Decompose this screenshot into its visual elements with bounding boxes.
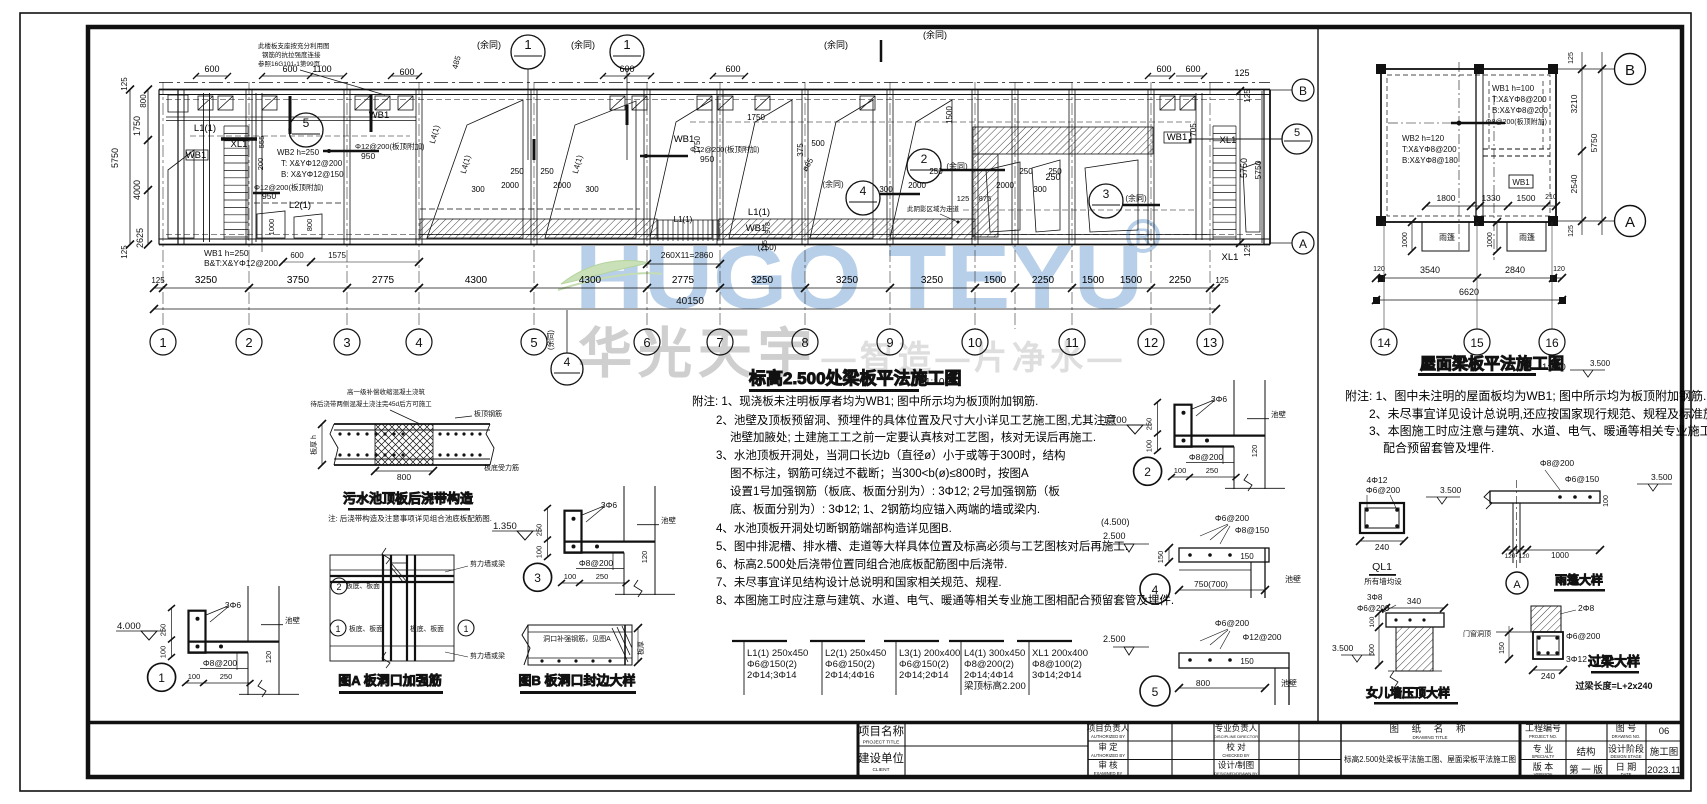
svg-text:3250: 3250 <box>921 275 944 286</box>
svg-text:3250: 3250 <box>195 275 218 286</box>
svg-text:3、水池顶板开洞处，当洞口长边b（直径ø）小于或等于300时: 3、水池顶板开洞处，当洞口长边b（直径ø）小于或等于300时，结构 <box>716 448 1066 462</box>
svg-text:1: 1 <box>623 37 630 52</box>
svg-text:池壁: 池壁 <box>1271 409 1287 419</box>
svg-text:2000: 2000 <box>908 181 926 190</box>
svg-text:125: 125 <box>957 194 970 203</box>
svg-text:4: 4 <box>415 335 422 350</box>
svg-text:14: 14 <box>1377 336 1391 350</box>
svg-text:500: 500 <box>811 139 825 148</box>
svg-text:3250: 3250 <box>836 275 859 286</box>
svg-text:图 纸 名 称: 图 纸 名 称 <box>1390 723 1471 735</box>
svg-text:WB1: WB1 <box>1167 132 1188 143</box>
svg-text:T: X&YΦ12@200: T: X&YΦ12@200 <box>281 159 343 168</box>
svg-text:3Φ8: 3Φ8 <box>1367 593 1383 602</box>
svg-text:600: 600 <box>204 64 219 74</box>
svg-text:配合预留套管及埋件.: 配合预留套管及埋件. <box>1383 440 1494 455</box>
svg-text:150: 150 <box>1240 657 1254 666</box>
svg-text:DESIGNED/DRAWN BY: DESIGNED/DRAWN BY <box>1214 771 1258 776</box>
svg-text:1.350: 1.350 <box>493 521 517 532</box>
svg-text:女儿墙压顶大样: 女儿墙压顶大样 <box>1366 685 1450 700</box>
svg-text:参照16G101-1第99页.: 参照16G101-1第99页. <box>258 59 322 68</box>
svg-text:250: 250 <box>159 624 168 637</box>
svg-text:5: 5 <box>303 116 310 130</box>
svg-text:800: 800 <box>305 219 314 232</box>
svg-text:5: 5 <box>1152 685 1159 699</box>
svg-text:1500: 1500 <box>984 275 1007 286</box>
svg-text:审 核: 审 核 <box>1098 760 1118 770</box>
svg-text:2: 2 <box>1144 465 1151 479</box>
svg-text:300: 300 <box>585 185 599 194</box>
svg-text:1: 1 <box>159 335 166 350</box>
svg-text:专 业: 专 业 <box>1533 743 1554 754</box>
svg-text:板底、板面: 板底、板面 <box>346 581 380 590</box>
svg-text:1330: 1330 <box>1482 193 1501 203</box>
svg-text:板厚: 板厚 <box>636 641 645 655</box>
svg-text:2Φ14;2Φ14: 2Φ14;2Φ14 <box>899 670 949 681</box>
svg-text:Φ8@100(2): Φ8@100(2) <box>1032 659 1082 670</box>
svg-text:375: 375 <box>796 143 805 157</box>
svg-text:125: 125 <box>1215 276 1229 285</box>
svg-text:A: A <box>1625 214 1635 231</box>
svg-text:3: 3 <box>1103 187 1110 201</box>
svg-text:7、未尽事宜详见结构设计总说明和国家相关规范、规程.: 7、未尽事宜详见结构设计总说明和国家相关规范、规程. <box>716 575 1002 589</box>
svg-text:梁顶标高2.200: 梁顶标高2.200 <box>964 680 1026 692</box>
svg-text:5750: 5750 <box>110 148 120 168</box>
svg-text:40150: 40150 <box>676 296 704 307</box>
svg-text:日 期: 日 期 <box>1616 762 1637 772</box>
svg-text:Φ6@200: Φ6@200 <box>1215 513 1250 523</box>
svg-text:5: 5 <box>530 335 537 350</box>
svg-text:Φ8@200(板顶附加): Φ8@200(板顶附加) <box>1486 117 1547 126</box>
svg-text:250: 250 <box>220 672 233 681</box>
svg-text:1:100: 1:100 <box>1542 362 1566 373</box>
svg-text:150: 150 <box>1240 552 1254 561</box>
svg-text:4.000: 4.000 <box>117 621 141 632</box>
svg-text:图B 板洞口封边大样: 图B 板洞口封边大样 <box>518 673 635 688</box>
svg-text:1750: 1750 <box>747 113 765 122</box>
svg-text:120: 120 <box>640 551 649 564</box>
svg-text:XL1: XL1 <box>1222 252 1239 263</box>
svg-text:Φ6@150(2): Φ6@150(2) <box>747 659 797 670</box>
svg-text:2、未尽事宜详见设计总说明,还应按国家现行规范、规程及标准施: 2、未尽事宜详见设计总说明,还应按国家现行规范、规程及标准施工. <box>1369 406 1707 421</box>
svg-text:1000: 1000 <box>1487 232 1494 248</box>
svg-text:B:X&YΦ8@200: B:X&YΦ8@200 <box>1492 106 1548 115</box>
svg-text:3210: 3210 <box>1569 94 1579 113</box>
svg-text:Φ8@200: Φ8@200 <box>203 658 238 668</box>
svg-text:3.500: 3.500 <box>1590 359 1611 368</box>
svg-text:1750: 1750 <box>132 116 142 136</box>
svg-text:750(700): 750(700) <box>1194 579 1228 589</box>
svg-text:L1(1): L1(1) <box>674 215 693 224</box>
svg-text:1500: 1500 <box>945 106 954 124</box>
svg-text:Φ6@150: Φ6@150 <box>1565 474 1600 484</box>
svg-text:11: 11 <box>1065 335 1079 350</box>
svg-text:(250): (250) <box>758 243 777 252</box>
svg-text:210: 210 <box>1545 194 1557 201</box>
svg-text:4、水池顶板开洞处切断钢筋端部构造详见图B.: 4、水池顶板开洞处切断钢筋端部构造详见图B. <box>716 521 952 535</box>
svg-text:2.500: 2.500 <box>1103 531 1126 541</box>
svg-text:100: 100 <box>1369 616 1376 627</box>
svg-text:B: X&YΦ12@150: B: X&YΦ12@150 <box>281 170 344 179</box>
svg-text:100: 100 <box>1603 495 1610 507</box>
svg-text:240: 240 <box>1375 542 1389 552</box>
svg-text:2: 2 <box>921 152 928 166</box>
svg-text:剪力墙或梁: 剪力墙或梁 <box>470 651 505 660</box>
svg-text:5750: 5750 <box>1589 133 1599 152</box>
svg-text:600: 600 <box>725 64 740 74</box>
svg-text:2、池壁及顶板预留洞、预埋件的具体位置及尺寸大小详见工艺施工: 2、池壁及顶板预留洞、预埋件的具体位置及尺寸大小详见工艺施工图,尤其注意 <box>716 413 1117 427</box>
svg-text:WB1 h=100: WB1 h=100 <box>1492 84 1535 93</box>
svg-text:待后浇带两侧混凝土浇注完45d后方可施工: 待后浇带两侧混凝土浇注完45d后方可施工 <box>310 399 432 408</box>
svg-text:雨篷大样: 雨篷大样 <box>1555 572 1603 587</box>
svg-text:WB2 h=250: WB2 h=250 <box>277 148 320 157</box>
svg-text:过梁长度=L+2x240: 过梁长度=L+2x240 <box>1575 680 1652 691</box>
svg-text:WB1: WB1 <box>186 150 207 161</box>
svg-text:WB1 h=250: WB1 h=250 <box>204 248 249 258</box>
svg-text:150: 150 <box>1156 551 1165 564</box>
svg-text:PROJECT NO.: PROJECT NO. <box>1529 734 1557 739</box>
svg-text:QL1: QL1 <box>1372 561 1392 573</box>
svg-text:SPECIALTY: SPECIALTY <box>1532 754 1555 759</box>
svg-text:VERSION: VERSION <box>1534 772 1553 777</box>
svg-text:555: 555 <box>257 136 266 149</box>
svg-text:250: 250 <box>929 167 943 176</box>
svg-text:250: 250 <box>510 167 524 176</box>
svg-text:1: 1 <box>524 37 531 52</box>
svg-text:2: 2 <box>245 335 252 350</box>
svg-text:附注: 1、现浇板未注明板厚者均为WB1; 图中所示均为板顶: 附注: 1、现浇板未注明板厚者均为WB1; 图中所示均为板顶附加钢筋. <box>692 394 1038 408</box>
svg-text:施工图: 施工图 <box>1650 746 1679 758</box>
svg-text:建设单位: 建设单位 <box>858 751 904 765</box>
svg-text:HUGO TEYU: HUGO TEYU <box>575 228 1143 328</box>
svg-text:板底、板面: 板底、板面 <box>349 624 383 633</box>
svg-text:250: 250 <box>535 524 544 537</box>
svg-text:池壁: 池壁 <box>285 615 300 625</box>
svg-text:2Φ14;4Φ14: 2Φ14;4Φ14 <box>964 670 1014 681</box>
svg-text:250: 250 <box>596 572 609 581</box>
svg-text:1: 1 <box>158 671 165 685</box>
svg-text:L2(1) 250x450: L2(1) 250x450 <box>825 648 886 659</box>
svg-text:结构: 结构 <box>1576 746 1595 758</box>
svg-text:100: 100 <box>564 572 577 581</box>
svg-text:9: 9 <box>886 335 893 350</box>
svg-text:EXAMINED BY: EXAMINED BY <box>1094 771 1123 776</box>
svg-text:250: 250 <box>540 167 554 176</box>
svg-text:6: 6 <box>643 335 650 350</box>
svg-text:3: 3 <box>534 571 541 585</box>
svg-text:3.500: 3.500 <box>1651 472 1673 482</box>
svg-text:3: 3 <box>343 335 350 350</box>
svg-text:DRAWING TITLE: DRAWING TITLE <box>1412 735 1447 740</box>
svg-text:钢筋的抗拉强度连接: 钢筋的抗拉强度连接 <box>262 50 321 59</box>
svg-text:A: A <box>1299 237 1307 251</box>
svg-text:池壁: 池壁 <box>661 515 676 525</box>
svg-text:2775: 2775 <box>372 275 395 286</box>
svg-text:120: 120 <box>1553 266 1565 273</box>
svg-text:4300: 4300 <box>579 275 602 286</box>
svg-text:门窗洞顶: 门窗洞顶 <box>1463 629 1491 638</box>
svg-text:板底受力筋: 板底受力筋 <box>484 463 519 472</box>
svg-text:DISCIPLINE DIRECTOR: DISCIPLINE DIRECTOR <box>1214 734 1258 739</box>
svg-text:标高2.500处梁板平法施工图、屋面梁板平法施工图: 标高2.500处梁板平法施工图、屋面梁板平法施工图 <box>1344 754 1516 764</box>
svg-text:专业负责人: 专业负责人 <box>1215 723 1258 733</box>
svg-text:5750: 5750 <box>1253 160 1263 179</box>
svg-text:L3(1) 200x400: L3(1) 200x400 <box>899 648 960 659</box>
svg-text:1750: 1750 <box>693 136 702 154</box>
svg-text:WB1: WB1 <box>674 134 695 145</box>
svg-text:T:X&YΦ8@200: T:X&YΦ8@200 <box>1402 145 1457 154</box>
svg-text:Φ8@200: Φ8@200 <box>1189 452 1224 462</box>
svg-text:L1(1): L1(1) <box>194 123 216 134</box>
svg-text:2775: 2775 <box>672 275 695 286</box>
svg-text:附注: 1、图中未注明的屋面板均为WB1; 图中所示均为板顶: 附注: 1、图中未注明的屋面板均为WB1; 图中所示均为板顶附加钢筋. <box>1345 388 1706 403</box>
svg-text:600: 600 <box>290 251 304 260</box>
svg-text:2250: 2250 <box>1032 275 1055 286</box>
svg-text:Φ8@150: Φ8@150 <box>1235 525 1270 535</box>
svg-text:XL1: XL1 <box>1220 135 1237 146</box>
svg-text:2625: 2625 <box>135 228 145 248</box>
svg-text:高一级补偿收缩混凝土浇筑: 高一级补偿收缩混凝土浇筑 <box>347 387 426 396</box>
svg-text:雨篷: 雨篷 <box>1519 232 1535 242</box>
svg-text:120: 120 <box>1519 553 1530 560</box>
svg-text:100: 100 <box>1174 466 1187 475</box>
svg-text:3.500: 3.500 <box>1332 643 1354 653</box>
svg-text:150: 150 <box>1499 642 1506 654</box>
svg-text:600: 600 <box>1185 64 1200 74</box>
svg-text:L2(1): L2(1) <box>289 200 311 211</box>
svg-text:污水池顶板后浇带构造: 污水池顶板后浇带构造 <box>343 491 474 506</box>
svg-text:(余同): (余同) <box>923 29 947 40</box>
svg-text:3Φ12: 3Φ12 <box>1566 654 1587 664</box>
svg-text:5: 5 <box>1294 127 1300 139</box>
svg-text:Φ6@200: Φ6@200 <box>1566 631 1601 641</box>
svg-text:1500: 1500 <box>1517 193 1536 203</box>
svg-text:PROJECT TITLE: PROJECT TITLE <box>863 740 900 746</box>
svg-text:705: 705 <box>1189 123 1198 137</box>
svg-text:4: 4 <box>1152 583 1159 597</box>
svg-text:5、图中排泥槽、排水槽、走道等大样具体位置及标高必须与工艺图: 5、图中排泥槽、排水槽、走道等大样具体位置及标高必须与工艺图核对后再施工. <box>716 539 1128 553</box>
svg-text:875: 875 <box>979 194 992 203</box>
svg-text:200: 200 <box>256 158 265 171</box>
svg-text:125: 125 <box>1234 68 1249 78</box>
svg-text:Φ6@150(2): Φ6@150(2) <box>899 659 949 670</box>
svg-text:120: 120 <box>1373 266 1385 273</box>
svg-text:800: 800 <box>397 472 411 482</box>
svg-text:剪力墙或梁: 剪力墙或梁 <box>470 559 505 568</box>
svg-text:项目名称: 项目名称 <box>858 724 904 738</box>
svg-text:2Φ8: 2Φ8 <box>1578 603 1595 613</box>
svg-text:5750: 5750 <box>1239 158 1249 178</box>
svg-text:图不标注，钢筋可绕过不截断；当300<b(ø)≤800时，按: 图不标注，钢筋可绕过不截断；当300<b(ø)≤800时，按图A <box>730 466 1029 480</box>
svg-text:L4(1) 300x450: L4(1) 300x450 <box>964 648 1025 659</box>
svg-text:950: 950 <box>700 154 714 164</box>
svg-text:池壁: 池壁 <box>1285 574 1301 584</box>
svg-text:板底、板面: 板底、板面 <box>410 624 444 633</box>
svg-text:4: 4 <box>564 355 571 369</box>
svg-text:2000: 2000 <box>501 181 519 190</box>
svg-text:6、标高2.500处后浇带位置同组合池底板配筋图中后浇带.: 6、标高2.500处后浇带位置同组合池底板配筋图中后浇带. <box>716 557 1007 571</box>
svg-text:过梁大样: 过梁大样 <box>1588 654 1640 669</box>
svg-text:3、本图施工时应注意与建筑、水道、电气、暖通等相关专业施工图: 3、本图施工时应注意与建筑、水道、电气、暖通等相关专业施工图相 <box>1369 423 1707 438</box>
svg-text:600: 600 <box>399 67 414 77</box>
svg-text:120: 120 <box>264 651 273 664</box>
svg-text:3540: 3540 <box>1420 265 1440 275</box>
svg-text:DRAWING NO.: DRAWING NO. <box>1612 734 1641 739</box>
svg-text:校 对: 校 对 <box>1226 742 1246 752</box>
svg-text:图A 板洞口加强筋: 图A 板洞口加强筋 <box>338 673 442 688</box>
svg-text:100: 100 <box>159 646 168 659</box>
svg-text:WB1: WB1 <box>1512 178 1530 187</box>
svg-text:250: 250 <box>1145 418 1154 431</box>
svg-text:Φ12@200: Φ12@200 <box>1242 632 1281 642</box>
svg-text:3250: 3250 <box>751 275 774 286</box>
svg-text:B: B <box>1625 62 1635 79</box>
svg-text:120: 120 <box>1250 445 1259 458</box>
svg-text:池壁: 池壁 <box>1281 678 1297 688</box>
svg-text:125: 125 <box>120 77 129 91</box>
svg-text:2840: 2840 <box>1505 265 1525 275</box>
svg-text:2.500: 2.500 <box>1103 634 1126 644</box>
svg-text:B:X&YΦ8@180: B:X&YΦ8@180 <box>1402 156 1458 165</box>
svg-text:340: 340 <box>1407 596 1421 606</box>
svg-text:AUTHORIZED BY: AUTHORIZED BY <box>1091 734 1125 739</box>
svg-text:(余同): (余同) <box>824 39 848 50</box>
svg-text:图 号: 图 号 <box>1616 723 1637 733</box>
svg-text:600: 600 <box>1156 64 1171 74</box>
svg-text:洞口补强钢筋，见图A: 洞口补强钢筋，见图A <box>543 634 611 643</box>
svg-text:设置1号加强钢筋（板底、板面分别为）: 3Φ12; 2号加强: 设置1号加强钢筋（板底、板面分别为）: 3Φ12; 2号加强钢筋（板 <box>730 484 1060 498</box>
svg-text:120: 120 <box>1505 553 1516 560</box>
svg-text:此楼板支座按充分利用图: 此楼板支座按充分利用图 <box>258 41 330 50</box>
svg-text:池壁加腋处; 土建施工工之前一定要认真核对工艺图，核对无误后: 池壁加腋处; 土建施工工之前一定要认真核对工艺图，核对无误后再施工. <box>730 430 1096 444</box>
svg-text:CLIENT: CLIENT <box>872 767 889 773</box>
svg-text:(余同): (余同) <box>1125 193 1147 203</box>
svg-text:7: 7 <box>716 335 723 350</box>
svg-text:所有墙均设: 所有墙均设 <box>1364 576 1402 586</box>
svg-text:8、本图施工时应注意与建筑、水道、电气、暖通等相关专业施工图: 8、本图施工时应注意与建筑、水道、电气、暖通等相关专业施工图相配合预留套管及埋件… <box>716 593 1174 607</box>
svg-text:CHECKED BY: CHECKED BY <box>1222 753 1249 758</box>
svg-text:注: 后浇带构造及注意事项详见组合池底板配筋图.: 注: 后浇带构造及注意事项详见组合池底板配筋图. <box>328 513 492 523</box>
svg-text:3750: 3750 <box>287 275 310 286</box>
svg-text:雨篷: 雨篷 <box>1439 232 1455 242</box>
svg-text:10: 10 <box>968 335 982 350</box>
svg-text:16: 16 <box>1545 336 1559 350</box>
svg-text:3Φ14;2Φ14: 3Φ14;2Φ14 <box>1032 670 1082 681</box>
svg-text:1500: 1500 <box>1082 275 1105 286</box>
svg-text:500: 500 <box>1369 644 1376 656</box>
svg-text:125: 125 <box>120 245 129 259</box>
svg-text:B&T:X&YΦ12@200: B&T:X&YΦ12@200 <box>204 258 278 268</box>
svg-text:1:100: 1:100 <box>925 377 950 388</box>
svg-text:Φ12@200(板顶附加): Φ12@200(板顶附加) <box>355 141 425 151</box>
svg-text:1500: 1500 <box>1120 275 1143 286</box>
svg-text:Φ8@200: Φ8@200 <box>579 558 614 568</box>
svg-text:L1(1): L1(1) <box>748 207 770 218</box>
svg-text:工程编号: 工程编号 <box>1525 722 1561 733</box>
svg-text:底、板面分别为）: 3Φ12; 1、2钢筋均应锚入两端的墙或: 底、板面分别为）: 3Φ12; 1、2钢筋均应锚入两端的墙或梁内. <box>730 502 1040 516</box>
svg-text:13: 13 <box>1203 335 1217 350</box>
svg-text:审 定: 审 定 <box>1098 742 1118 752</box>
svg-text:3Φ6: 3Φ6 <box>1211 394 1228 404</box>
svg-text:2Φ14;4Φ16: 2Φ14;4Φ16 <box>825 670 875 681</box>
svg-text:WB2 h=120: WB2 h=120 <box>1402 134 1445 143</box>
svg-text:125: 125 <box>1568 225 1575 237</box>
svg-text:1: 1 <box>335 624 340 634</box>
svg-text:Φ8@200(2): Φ8@200(2) <box>964 659 1014 670</box>
svg-text:版 本: 版 本 <box>1533 761 1554 772</box>
svg-text:1000: 1000 <box>1551 551 1569 560</box>
svg-text:15: 15 <box>1470 336 1484 350</box>
svg-text:1000: 1000 <box>1402 232 1409 248</box>
svg-text:(余同): (余同) <box>822 179 844 189</box>
svg-text:300: 300 <box>879 185 893 194</box>
svg-text:125: 125 <box>1568 52 1575 64</box>
svg-text:1575: 1575 <box>328 251 346 260</box>
svg-text:(余同): (余同) <box>571 39 595 50</box>
svg-text:DATE: DATE <box>1621 772 1632 777</box>
svg-text:12: 12 <box>1144 335 1158 350</box>
svg-text:Φ6@150(2): Φ6@150(2) <box>825 659 875 670</box>
svg-text:板厚 h: 板厚 h <box>309 435 318 455</box>
svg-text:125: 125 <box>1243 243 1252 257</box>
svg-text:4Φ12: 4Φ12 <box>1367 475 1388 485</box>
svg-text:设计阶段: 设计阶段 <box>1608 743 1644 754</box>
svg-text:A: A <box>1513 579 1521 591</box>
svg-text:AUTHORIZED BY: AUTHORIZED BY <box>1091 753 1125 758</box>
svg-text:250: 250 <box>1048 167 1062 176</box>
svg-text:板顶钢筋: 板顶钢筋 <box>474 409 502 418</box>
svg-text:300: 300 <box>1033 185 1047 194</box>
svg-text:3Φ6: 3Φ6 <box>601 500 618 510</box>
svg-text:2023.11: 2023.11 <box>1647 765 1681 776</box>
svg-text:4: 4 <box>860 184 867 198</box>
svg-text:978: 978 <box>765 222 772 234</box>
svg-text:100: 100 <box>535 546 544 559</box>
svg-text:100: 100 <box>188 672 201 681</box>
svg-text:B: B <box>1299 84 1307 98</box>
svg-text:800: 800 <box>1196 678 1210 688</box>
svg-text:2: 2 <box>336 582 341 592</box>
svg-text:项目负责人: 项目负责人 <box>1087 723 1130 733</box>
svg-text:1800: 1800 <box>1437 193 1456 203</box>
svg-text:1000: 1000 <box>267 219 276 236</box>
svg-text:2250: 2250 <box>1169 275 1192 286</box>
svg-text:T:X&YΦ8@200: T:X&YΦ8@200 <box>1492 95 1547 104</box>
svg-text:DESIGN STAGE: DESIGN STAGE <box>1610 754 1641 759</box>
svg-text:2540: 2540 <box>1569 174 1579 193</box>
svg-text:(4.500): (4.500) <box>1101 517 1130 527</box>
svg-text:250: 250 <box>1019 167 1033 176</box>
svg-text:Φ6@200: Φ6@200 <box>1366 485 1401 495</box>
svg-text:250: 250 <box>1206 466 1219 475</box>
svg-text:06: 06 <box>1659 726 1670 737</box>
svg-text:2000: 2000 <box>996 181 1014 190</box>
svg-text:6620: 6620 <box>1459 287 1479 297</box>
svg-text:Φ8@200: Φ8@200 <box>1540 458 1575 468</box>
svg-text:300: 300 <box>471 185 485 194</box>
svg-text:100: 100 <box>1145 440 1154 453</box>
svg-text:4000: 4000 <box>132 180 142 200</box>
svg-text:240: 240 <box>1541 671 1555 681</box>
svg-text:125: 125 <box>1243 89 1252 103</box>
svg-text:2Φ14;3Φ14: 2Φ14;3Φ14 <box>747 670 797 681</box>
svg-text:2000: 2000 <box>553 181 571 190</box>
svg-text:1: 1 <box>463 624 468 634</box>
svg-text:L1(1) 250x450: L1(1) 250x450 <box>747 648 808 659</box>
svg-text:800: 800 <box>139 94 148 108</box>
svg-text:1.700: 1.700 <box>1103 415 1127 426</box>
svg-text:WB1: WB1 <box>746 223 767 234</box>
